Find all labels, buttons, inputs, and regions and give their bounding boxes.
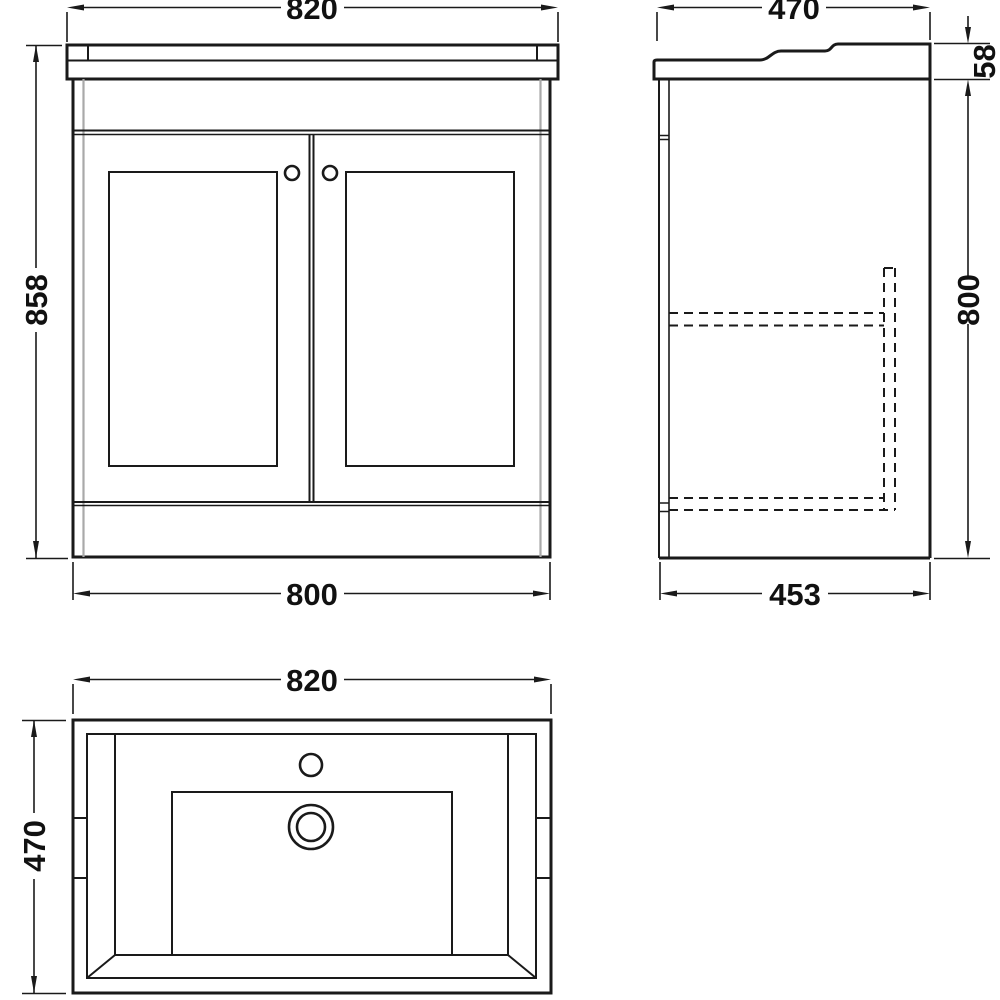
arrowhead-right-icon bbox=[913, 5, 930, 11]
arrowhead-left-icon bbox=[73, 677, 90, 683]
dim-label-plan-depth: 470 bbox=[17, 820, 52, 872]
dim-label-front-top-width: 820 bbox=[286, 0, 338, 26]
dim-label-side-top-depth: 470 bbox=[768, 0, 820, 26]
arrowhead-up-icon bbox=[33, 45, 39, 62]
arrowhead-right-icon bbox=[541, 5, 558, 11]
door-handle-left bbox=[285, 166, 299, 180]
dim-label-side-bottom-depth: 453 bbox=[769, 577, 821, 612]
dim-label-front-bottom-width: 800 bbox=[286, 577, 338, 612]
arrowhead-up-icon bbox=[965, 80, 971, 97]
dim-plan-depth: 470 bbox=[17, 720, 66, 994]
side-front-edge-joints bbox=[659, 136, 669, 512]
arrowhead-down-icon bbox=[965, 27, 971, 44]
plan-basin-rim bbox=[87, 734, 536, 978]
arrowhead-up-icon bbox=[31, 720, 37, 737]
tap-hole bbox=[300, 754, 322, 776]
dim-label-plan-width: 820 bbox=[286, 663, 338, 698]
arrowhead-left-icon bbox=[660, 591, 677, 597]
plan-basin-opening bbox=[115, 734, 508, 955]
dim-side-worktop-thickness: 58 bbox=[934, 16, 1000, 80]
side-hidden-shelf-upper bbox=[669, 313, 884, 326]
dim-label-side-body-height: 800 bbox=[951, 274, 986, 326]
door-panel-left bbox=[109, 172, 277, 466]
side-view bbox=[654, 44, 930, 558]
side-hidden-shelf-lower bbox=[669, 498, 895, 510]
door-panel-right bbox=[346, 172, 514, 466]
arrowhead-right-icon bbox=[534, 677, 551, 683]
dim-front-top-width: 820 bbox=[67, 0, 558, 42]
drain-inner-ring bbox=[297, 813, 325, 841]
arrowhead-down-icon bbox=[31, 976, 37, 993]
plan-worktop-outline bbox=[73, 720, 551, 993]
technical-drawing-page: 820 858 800 470 bbox=[0, 0, 1000, 1000]
dim-label-side-worktop-thickness: 58 bbox=[967, 44, 1000, 78]
drain-outer-ring bbox=[289, 805, 333, 849]
plan-corner-bevels bbox=[87, 955, 536, 978]
front-cabinet-outline bbox=[73, 79, 550, 557]
dim-label-front-height: 858 bbox=[19, 274, 54, 326]
arrowhead-down-icon bbox=[33, 541, 39, 558]
dim-front-bottom-width: 800 bbox=[73, 562, 550, 612]
vanity-unit-drawing: 820 858 800 470 bbox=[0, 0, 1000, 1000]
arrowhead-right-icon bbox=[533, 591, 550, 597]
dim-side-body-height: 800 bbox=[934, 80, 990, 559]
arrowhead-left-icon bbox=[73, 591, 90, 597]
arrowhead-down-icon bbox=[965, 541, 971, 558]
dim-plan-width: 820 bbox=[73, 663, 551, 714]
arrowhead-left-icon bbox=[657, 5, 674, 11]
dim-front-height: 858 bbox=[19, 45, 68, 559]
door-handle-right bbox=[323, 166, 337, 180]
dim-side-top-depth: 470 bbox=[657, 0, 930, 41]
side-hidden-back-panel bbox=[884, 268, 895, 510]
side-worktop-profile bbox=[654, 44, 930, 79]
dim-side-bottom-depth: 453 bbox=[660, 562, 930, 612]
plan-bowl-floor bbox=[172, 792, 452, 955]
front-worktop-outline bbox=[67, 45, 558, 79]
plan-view bbox=[73, 720, 551, 993]
arrowhead-right-icon bbox=[913, 591, 930, 597]
arrowhead-left-icon bbox=[67, 5, 84, 11]
front-view bbox=[67, 45, 558, 557]
